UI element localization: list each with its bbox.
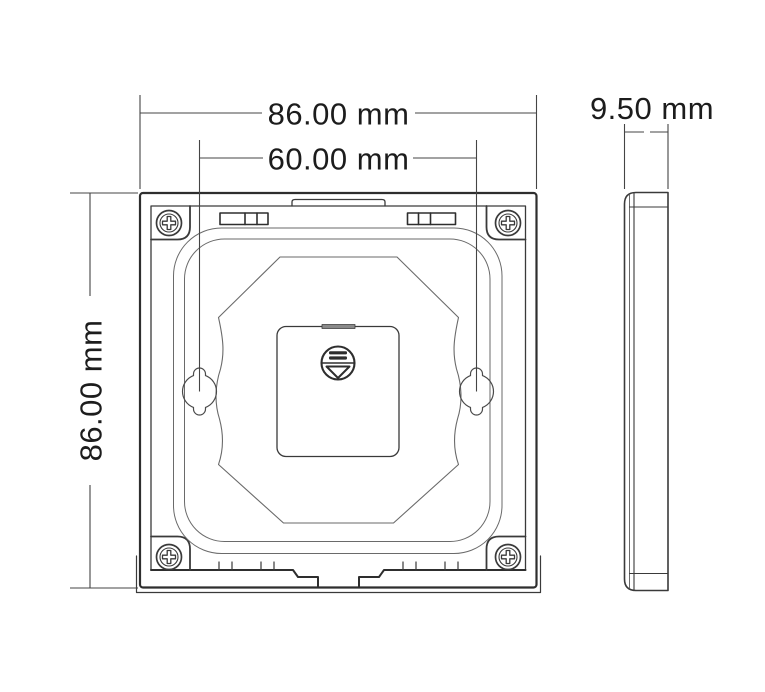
dim-depth: 9.50 mm: [590, 91, 714, 189]
dim-label-hole-spacing: 60.00 mm: [268, 142, 410, 177]
corner-brackets: [151, 206, 526, 570]
phillips-screw-icon: [496, 545, 521, 570]
phillips-screw-icon: [496, 211, 521, 236]
top-clip-right: [408, 213, 456, 225]
bottom-frame-left: [151, 570, 318, 587]
top-tab: [292, 200, 385, 207]
octagon-boss: [216, 257, 461, 523]
cover-notch: [322, 325, 355, 329]
dim-label-side-height: 86.00 mm: [74, 320, 109, 462]
drawing-canvas: 86.00 mm 60.00 mm 86.00 mm 9.50 mm: [0, 0, 765, 692]
phillips-screw-icon: [157, 211, 182, 236]
bottom-frame-right: [359, 570, 526, 587]
side-view: [625, 193, 669, 591]
corner-screws: [157, 211, 521, 570]
release-arrow-icon: [322, 347, 355, 380]
top-clip-left: [220, 213, 268, 225]
recess-outer: [174, 228, 503, 554]
bottom-ticks: [219, 562, 458, 570]
dimension-annotations: 86.00 mm 60.00 mm 86.00 mm 9.50 mm: [70, 91, 714, 588]
drawing-page: 86.00 mm 60.00 mm 86.00 mm 9.50 mm: [0, 0, 765, 692]
inner-frame: [151, 206, 526, 570]
side-profile-outline: [625, 193, 669, 591]
front-view: [137, 193, 541, 593]
dim-side-height: 86.00 mm: [70, 193, 138, 588]
recess-inner: [185, 239, 491, 542]
dim-label-top-width: 86.00 mm: [268, 97, 410, 132]
phillips-screw-icon: [157, 545, 182, 570]
dim-label-depth: 9.50 mm: [590, 91, 714, 126]
